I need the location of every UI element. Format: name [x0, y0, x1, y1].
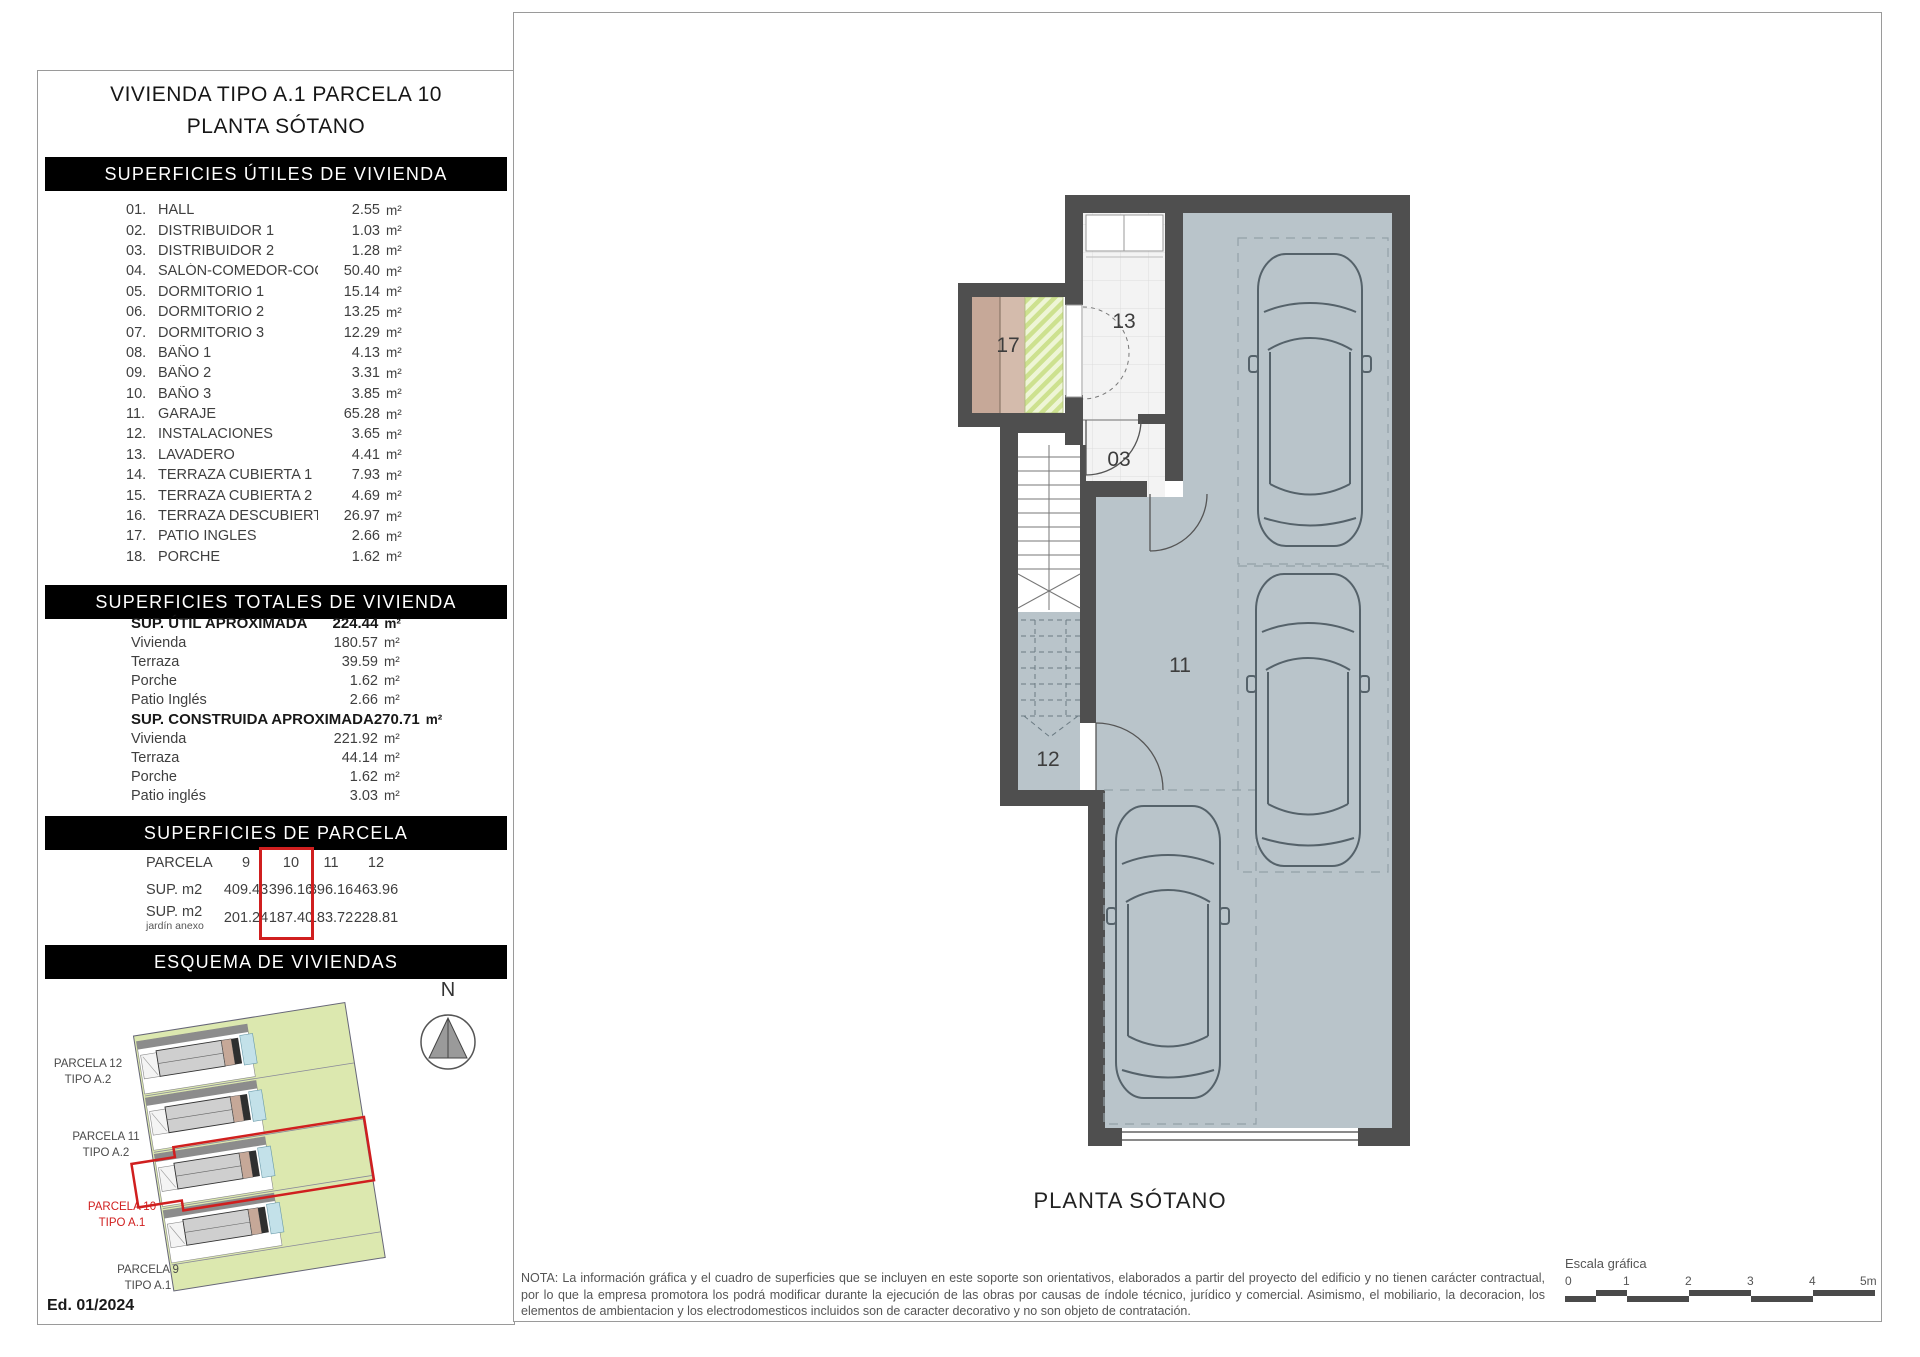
room-area-value: 12.29 [318, 325, 380, 341]
totals-row: Terraza44.14m² [131, 748, 410, 767]
legal-note: NOTA: La información gráfica y el cuadro… [521, 1270, 1545, 1320]
room-row: 14.TERRAZA CUBIERTA 17.93m² [38, 465, 514, 485]
room-area-value: 65.28 [318, 406, 380, 422]
room-row: 16.TERRAZA DESCUBIERTA26.97m² [38, 506, 514, 526]
stairs-upper-flight [1018, 445, 1080, 610]
scheme-label-parcela-9: PARCELA 9TIPO A.1 [106, 1262, 190, 1294]
room-area-value: 26.97 [318, 508, 380, 524]
room-number: 07. [126, 325, 154, 341]
totals-built-heading: SUP. CONSTRUIDA APROXIMADA 270.71 m² [131, 710, 410, 729]
room-area-unit: m² [380, 447, 410, 462]
totals-util-block: SUP. ÚTIL APROXIMADA 224.44 m² Vivienda1… [131, 614, 410, 709]
room-area-unit: m² [380, 468, 410, 483]
room-number: 01. [126, 202, 154, 218]
totals-row-label: Vivienda [131, 635, 306, 651]
room-name: HALL [158, 202, 318, 218]
room-area-value: 4.69 [318, 488, 380, 504]
room-label-12: 12 [1036, 748, 1059, 771]
north-letter: N [441, 979, 455, 1001]
patio-door-panel [1066, 305, 1082, 397]
totals-util-heading: SUP. ÚTIL APROXIMADA 224.44 m² [131, 614, 410, 633]
svg-text:4: 4 [1809, 1274, 1816, 1288]
room-number: 04. [126, 263, 154, 279]
room-area-unit: m² [380, 529, 410, 544]
totals-row-value: 221.92 [306, 731, 378, 747]
room-number: 08. [126, 345, 154, 361]
room-number: 05. [126, 284, 154, 300]
room-area-value: 3.85 [318, 386, 380, 402]
room-row: 08.BAÑO 14.13m² [38, 343, 514, 363]
site-scheme-map [123, 986, 393, 1306]
room-name: GARAJE [158, 406, 318, 422]
totals-util-label: SUP. ÚTIL APROXIMADA [131, 615, 307, 632]
scale-ticks: 0 1 2 3 4 5m [1565, 1274, 1877, 1288]
room-area-value: 50.40 [318, 263, 380, 279]
room-area-unit: m² [380, 305, 410, 320]
room-row: 13.LAVADERO4.41m² [38, 445, 514, 465]
room-name: DORMITORIO 2 [158, 304, 318, 320]
parcela-jardin-sublabel: jardín anexo [146, 920, 204, 932]
room-area-unit: m² [380, 223, 410, 238]
sheet-title-line2: PLANTA SÓTANO [38, 115, 514, 139]
room-area-value: 7.93 [318, 467, 380, 483]
room-area-unit: m² [380, 407, 410, 422]
room-label-03: 03 [1107, 448, 1130, 471]
room-area-value: 1.28 [318, 243, 380, 259]
room-label-11: 11 [1169, 654, 1191, 677]
room-name: SALÓN-COMEDOR-COCINA [158, 263, 318, 279]
room-area-unit: m² [380, 284, 410, 299]
room-name: TERRAZA DESCUBIERTA [158, 508, 318, 524]
graphic-scale: Escala gráfica 0 1 2 3 4 5m [1565, 1256, 1880, 1306]
totals-row-unit: m² [378, 673, 410, 688]
room-area-unit: m² [380, 509, 410, 524]
room-area-unit: m² [380, 345, 410, 360]
room-number: 13. [126, 447, 154, 463]
room-number: 02. [126, 223, 154, 239]
totals-row-unit: m² [378, 769, 410, 784]
room-name: LAVADERO [158, 447, 318, 463]
floor-plan: 17 13 03 11 12 [950, 185, 1420, 1160]
room-number: 03. [126, 243, 154, 259]
scale-bar [1565, 1290, 1875, 1302]
room-label-17: 17 [996, 334, 1019, 357]
room-area-value: 3.31 [318, 365, 380, 381]
room-name: PORCHE [158, 549, 318, 565]
room-name: DISTRIBUIDOR 1 [158, 223, 318, 239]
totals-row-value: 39.59 [306, 654, 378, 670]
totals-row: Patio Inglés2.66m² [131, 690, 410, 709]
room-number: 11. [126, 406, 154, 422]
room-number: 06. [126, 304, 154, 320]
room-name: BAÑO 1 [158, 345, 318, 361]
room-row: 10.BAÑO 33.85m² [38, 384, 514, 404]
room-number: 12. [126, 426, 154, 442]
room-area-unit: m² [380, 325, 410, 340]
edition-date: Ed. 01/2024 [47, 1297, 134, 1315]
room-row: 05.DORMITORIO 115.14m² [38, 282, 514, 302]
room-area-value: 2.55 [318, 202, 380, 218]
totals-built-block: SUP. CONSTRUIDA APROXIMADA 270.71 m² Viv… [131, 710, 410, 805]
totals-util-unit: m² [378, 616, 410, 631]
room-number: 09. [126, 365, 154, 381]
room-row: 12.INSTALACIONES3.65m² [38, 424, 514, 444]
room-row: 18.PORCHE1.62m² [38, 547, 514, 567]
info-panel: VIVIENDA TIPO A.1 PARCELA 10 PLANTA SÓTA… [37, 70, 515, 1325]
totals-row-unit: m² [378, 692, 410, 707]
room-area-unit: m² [380, 203, 410, 218]
totals-row-label: Patio inglés [131, 788, 306, 804]
room-row: 07.DORMITORIO 312.29m² [38, 322, 514, 342]
room-number: 17. [126, 528, 154, 544]
patio-green-hatch [1025, 297, 1063, 413]
room-area-unit: m² [380, 427, 410, 442]
totals-row-label: Terraza [131, 750, 306, 766]
room-row: 04.SALÓN-COMEDOR-COCINA50.40m² [38, 261, 514, 281]
svg-text:3: 3 [1747, 1274, 1754, 1288]
section-header-superficies-parcela: SUPERFICIES DE PARCELA [45, 816, 507, 850]
totals-util-value: 224.44 [307, 615, 378, 632]
svg-text:2: 2 [1685, 1274, 1692, 1288]
room-row: 01.HALL2.55m² [38, 200, 514, 220]
north-arrow: N [413, 976, 483, 1091]
totals-row: Porche1.62m² [131, 671, 410, 690]
scheme-label-parcela-12: PARCELA 12TIPO A.2 [46, 1056, 130, 1088]
plan-caption: PLANTA SÓTANO [1000, 1188, 1260, 1214]
totals-row-value: 1.62 [306, 673, 378, 689]
room-label-13: 13 [1112, 310, 1135, 333]
totals-row-label: Porche [131, 769, 306, 785]
totals-row-value: 3.03 [306, 788, 378, 804]
room-area-unit: m² [380, 366, 410, 381]
room-area-unit: m² [380, 549, 410, 564]
totals-row-value: 180.57 [306, 635, 378, 651]
room-row: 03.DISTRIBUIDOR 21.28m² [38, 241, 514, 261]
room-number: 18. [126, 549, 154, 565]
room-name: BAÑO 3 [158, 386, 318, 402]
totals-row-value: 2.66 [306, 692, 378, 708]
room-area-unit: m² [380, 386, 410, 401]
section-header-esquema: ESQUEMA DE VIVIENDAS [45, 945, 507, 979]
room-area-unit: m² [380, 243, 410, 258]
totals-row: Vivienda180.57m² [131, 633, 410, 652]
room-number: 14. [126, 467, 154, 483]
svg-text:5m: 5m [1860, 1274, 1877, 1288]
room-area-unit: m² [380, 264, 410, 279]
totals-row-unit: m² [378, 731, 410, 746]
room-name: DORMITORIO 3 [158, 325, 318, 341]
totals-row-label: Patio Inglés [131, 692, 306, 708]
totals-row: Patio inglés3.03m² [131, 786, 410, 805]
totals-row: Terraza39.59m² [131, 652, 410, 671]
parcela-jardin-12: 228.81 [351, 910, 401, 926]
totals-row-label: Porche [131, 673, 306, 689]
section-header-superficies-utiles: SUPERFICIES ÚTILES DE VIVIENDA [45, 157, 507, 191]
room-name: INSTALACIONES [158, 426, 318, 442]
room-name: BAÑO 2 [158, 365, 318, 381]
room-number: 15. [126, 488, 154, 504]
room-row: 15.TERRAZA CUBIERTA 24.69m² [38, 485, 514, 505]
room-area-value: 1.62 [318, 549, 380, 565]
room-area-value: 15.14 [318, 284, 380, 300]
room-area-value: 4.41 [318, 447, 380, 463]
parcela-row-label: PARCELA [146, 855, 213, 871]
room-row: 11.GARAJE65.28m² [38, 404, 514, 424]
room-area-unit: m² [380, 488, 410, 503]
room-name: DISTRIBUIDOR 2 [158, 243, 318, 259]
parcela-10-highlight-box [259, 847, 314, 940]
parcela-sup-label: SUP. m2 [146, 882, 202, 898]
svg-text:1: 1 [1623, 1274, 1630, 1288]
room-areas-list: 01.HALL2.55m²02.DISTRIBUIDOR 11.03m²03.D… [38, 200, 514, 567]
room-name: PATIO INGLES [158, 528, 318, 544]
totals-row-unit: m² [378, 654, 410, 669]
room-name: TERRAZA CUBIERTA 2 [158, 488, 318, 504]
room-row: 06.DORMITORIO 213.25m² [38, 302, 514, 322]
room-row: 09.BAÑO 23.31m² [38, 363, 514, 383]
room-number: 16. [126, 508, 154, 524]
scale-label: Escala gráfica [1565, 1256, 1647, 1271]
totals-built-label: SUP. CONSTRUIDA APROXIMADA [131, 711, 374, 728]
totals-row: Vivienda221.92m² [131, 729, 410, 748]
totals-row: Porche1.62m² [131, 767, 410, 786]
scheme-label-parcela-11: PARCELA 11TIPO A.2 [64, 1129, 148, 1161]
room-name: DORMITORIO 1 [158, 284, 318, 300]
totals-row-value: 1.62 [306, 769, 378, 785]
totals-row-value: 44.14 [306, 750, 378, 766]
totals-row-label: Vivienda [131, 731, 306, 747]
parcela-jardin-label: SUP. m2 [146, 904, 202, 920]
totals-row-unit: m² [378, 788, 410, 803]
room-area-value: 2.66 [318, 528, 380, 544]
sheet-title-line1: VIVIENDA TIPO A.1 PARCELA 10 [38, 83, 514, 107]
room-row: 17.PATIO INGLES2.66m² [38, 526, 514, 546]
scheme-label-parcela-10: PARCELA 10TIPO A.1 [80, 1199, 164, 1231]
room-row: 02.DISTRIBUIDOR 11.03m² [38, 220, 514, 240]
room-number: 10. [126, 386, 154, 402]
room-area-value: 4.13 [318, 345, 380, 361]
parcela-sup-12: 463.96 [351, 882, 401, 898]
room-area-value: 3.65 [318, 426, 380, 442]
room-name: TERRAZA CUBIERTA 1 [158, 467, 318, 483]
svg-text:0: 0 [1565, 1274, 1572, 1288]
totals-row-unit: m² [378, 635, 410, 650]
room-area-value: 13.25 [318, 304, 380, 320]
room-area-value: 1.03 [318, 223, 380, 239]
totals-built-unit: m² [420, 712, 443, 727]
totals-row-label: Terraza [131, 654, 306, 670]
totals-built-value: 270.71 [374, 711, 420, 728]
totals-row-unit: m² [378, 750, 410, 765]
parcela-column-12: 12 [351, 855, 401, 871]
